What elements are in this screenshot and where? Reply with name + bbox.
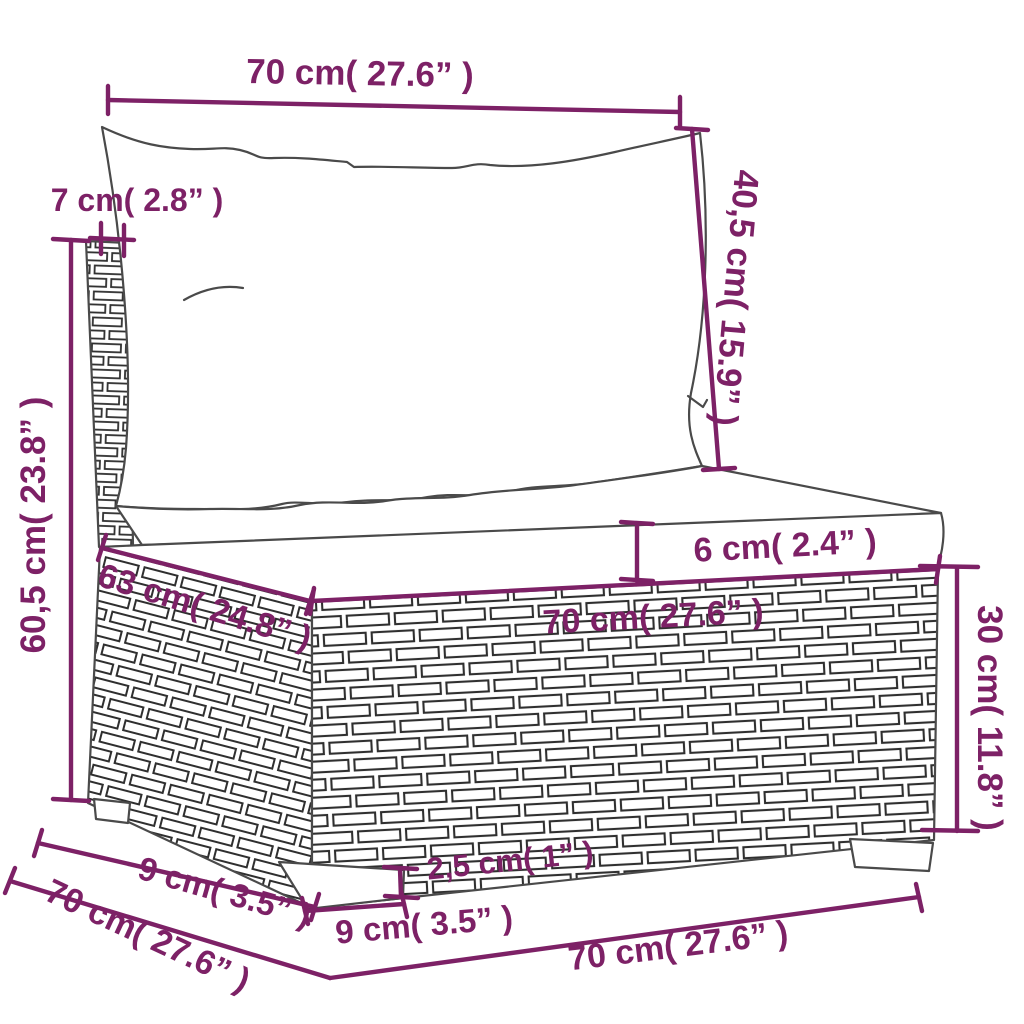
label-overall-width: 70 cm( 27.6” ) bbox=[566, 914, 790, 979]
diagram-page: 70 cm( 27.6” ) 7 cm( 2.8” ) 60,5 cm( 23.… bbox=[0, 0, 1024, 1024]
label-back-cushion-height: 40,5 cm( 15.9” ) bbox=[705, 168, 766, 427]
label-back-panel-thickness: 7 cm( 2.8” ) bbox=[51, 182, 224, 218]
label-overall-height: 60,5 cm( 23.8” ) bbox=[14, 397, 53, 654]
sofa-line-art bbox=[86, 127, 943, 909]
leg-back-left bbox=[94, 799, 130, 823]
diagram-canvas: 70 cm( 27.6” ) 7 cm( 2.8” ) 60,5 cm( 23.… bbox=[0, 0, 1024, 1024]
dim-line-overall-height bbox=[53, 239, 89, 801]
label-top-width: 70 cm( 27.6” ) bbox=[246, 52, 474, 95]
label-base-height: 30 cm( 11.8” ) bbox=[970, 605, 1009, 831]
leg-front-right bbox=[850, 839, 933, 871]
